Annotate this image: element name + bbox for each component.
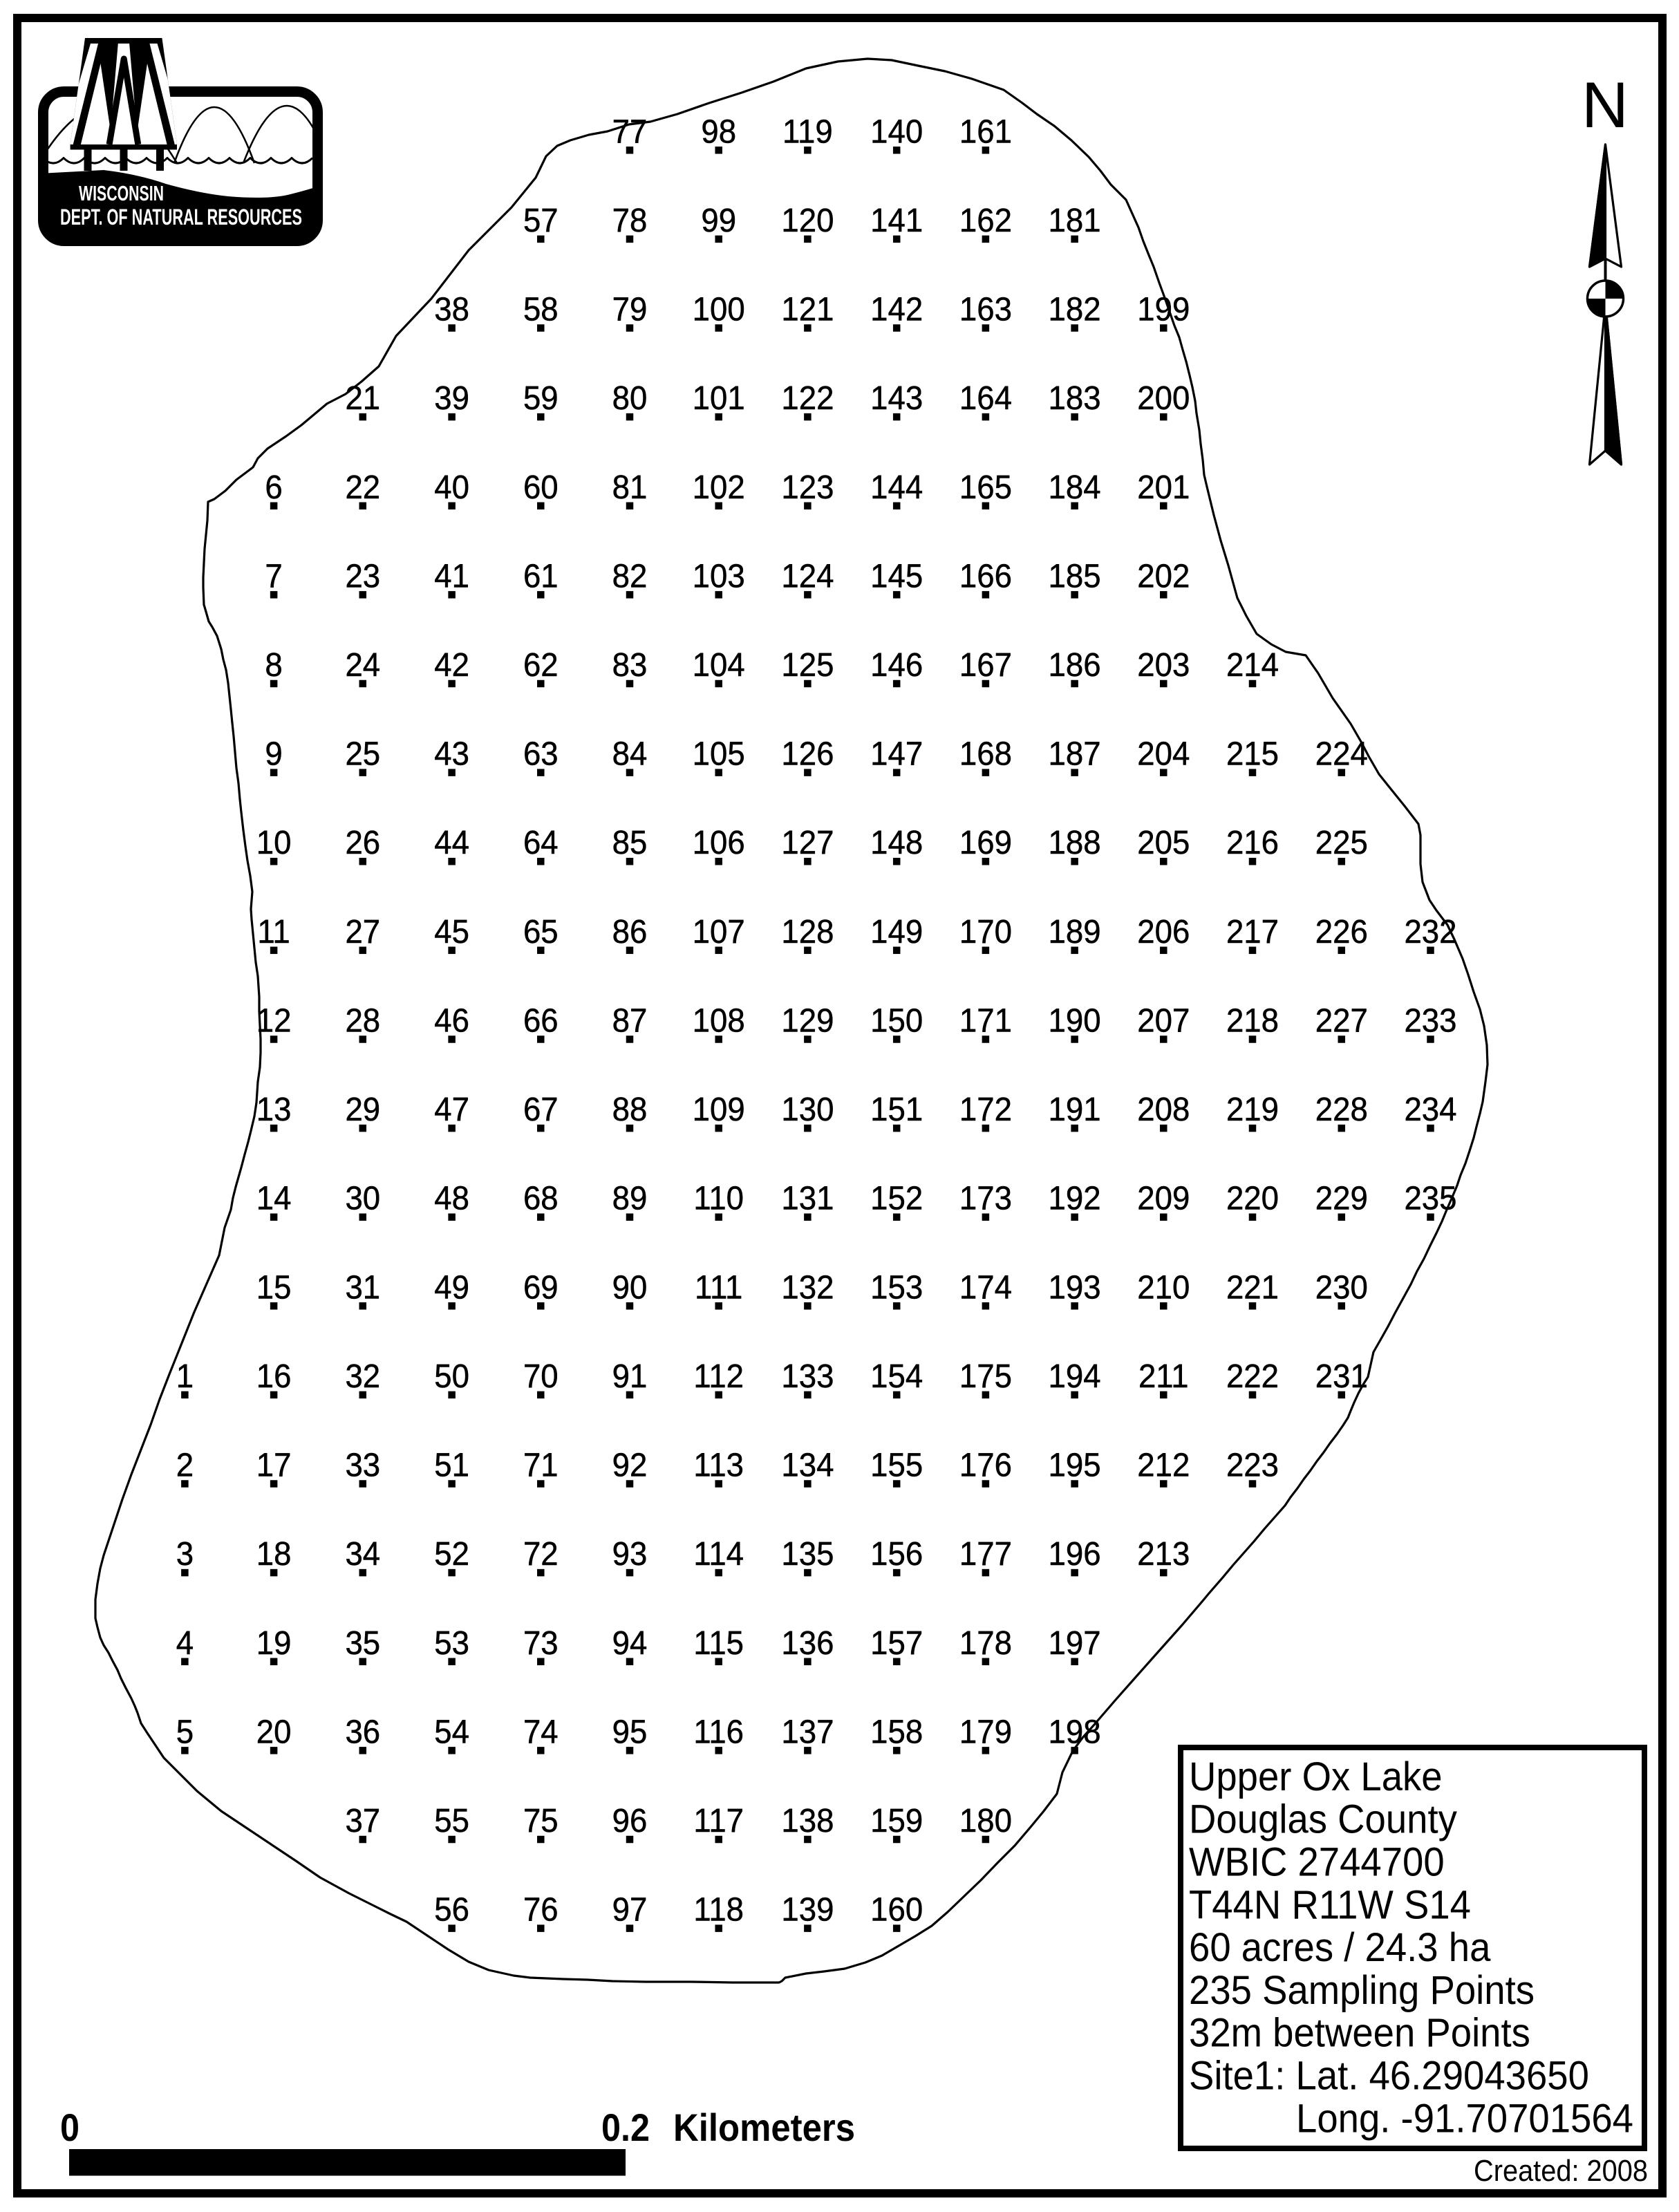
svg-text:154: 154: [870, 1358, 923, 1395]
svg-text:208: 208: [1137, 1091, 1190, 1128]
svg-text:139: 139: [781, 1892, 834, 1929]
svg-text:44: 44: [434, 825, 469, 861]
svg-text:120: 120: [781, 203, 834, 239]
svg-text:180: 180: [959, 1803, 1012, 1839]
svg-text:187: 187: [1049, 736, 1101, 773]
svg-text:32m between Points: 32m between Points: [1189, 2011, 1530, 2056]
svg-text:42: 42: [434, 647, 469, 684]
svg-text:147: 147: [870, 736, 923, 773]
svg-text:131: 131: [781, 1181, 834, 1217]
svg-text:181: 181: [1049, 203, 1101, 239]
svg-text:108: 108: [693, 1003, 745, 1040]
svg-text:222: 222: [1226, 1358, 1279, 1395]
svg-text:WISCONSIN: WISCONSIN: [79, 181, 164, 205]
svg-text:169: 169: [959, 825, 1012, 861]
svg-text:34: 34: [345, 1536, 380, 1573]
svg-text:184: 184: [1049, 469, 1101, 506]
svg-text:51: 51: [434, 1447, 469, 1484]
svg-text:134: 134: [781, 1447, 834, 1484]
svg-text:190: 190: [1049, 1003, 1101, 1040]
svg-text:100: 100: [693, 292, 745, 328]
svg-text:198: 198: [1049, 1714, 1101, 1750]
svg-text:53: 53: [434, 1625, 469, 1662]
svg-text:186: 186: [1049, 647, 1101, 684]
svg-text:107: 107: [693, 914, 745, 950]
svg-text:84: 84: [612, 736, 648, 773]
svg-text:143: 143: [870, 380, 923, 417]
svg-text:158: 158: [870, 1714, 923, 1750]
svg-text:32: 32: [345, 1358, 380, 1395]
svg-text:60: 60: [523, 469, 559, 506]
svg-text:66: 66: [523, 1003, 559, 1040]
svg-text:218: 218: [1226, 1003, 1279, 1040]
svg-text:119: 119: [782, 113, 833, 150]
svg-text:80: 80: [612, 380, 648, 417]
svg-text:15: 15: [256, 1269, 292, 1306]
svg-text:79: 79: [612, 292, 648, 328]
svg-text:27: 27: [345, 914, 380, 950]
svg-text:123: 123: [781, 469, 834, 506]
svg-text:99: 99: [701, 203, 736, 239]
svg-text:50: 50: [434, 1358, 469, 1395]
svg-text:159: 159: [870, 1803, 923, 1839]
svg-text:12: 12: [256, 1003, 292, 1040]
svg-text:167: 167: [959, 647, 1012, 684]
svg-text:130: 130: [781, 1091, 834, 1128]
svg-text:89: 89: [612, 1181, 648, 1217]
svg-text:30: 30: [345, 1181, 380, 1217]
svg-text:5: 5: [176, 1714, 194, 1750]
svg-text:105: 105: [693, 736, 745, 773]
svg-text:64: 64: [523, 825, 559, 861]
svg-text:97: 97: [612, 1892, 648, 1929]
svg-text:155: 155: [870, 1447, 923, 1484]
svg-text:75: 75: [523, 1803, 559, 1839]
svg-text:38: 38: [434, 292, 469, 328]
svg-text:121: 121: [781, 292, 834, 328]
svg-text:19: 19: [256, 1625, 292, 1662]
svg-text:199: 199: [1137, 292, 1190, 328]
svg-text:197: 197: [1049, 1625, 1101, 1662]
svg-text:N: N: [1582, 68, 1629, 141]
svg-text:191: 191: [1049, 1091, 1101, 1128]
svg-text:151: 151: [870, 1091, 923, 1128]
svg-text:202: 202: [1137, 558, 1190, 594]
svg-text:72: 72: [523, 1536, 559, 1573]
svg-text:135: 135: [781, 1536, 834, 1573]
svg-text:212: 212: [1137, 1447, 1190, 1484]
svg-text:171: 171: [959, 1003, 1012, 1040]
svg-text:230: 230: [1315, 1269, 1368, 1306]
svg-text:DEPT. OF NATURAL RESOURCES: DEPT. OF NATURAL RESOURCES: [60, 205, 302, 229]
svg-text:138: 138: [781, 1803, 834, 1839]
svg-text:45: 45: [434, 914, 469, 950]
svg-text:26: 26: [345, 825, 380, 861]
svg-text:3: 3: [176, 1536, 194, 1573]
svg-text:49: 49: [434, 1269, 469, 1306]
svg-text:215: 215: [1226, 736, 1279, 773]
svg-text:82: 82: [612, 558, 648, 594]
svg-text:142: 142: [870, 292, 923, 328]
svg-text:40: 40: [434, 469, 469, 506]
svg-text:223: 223: [1226, 1447, 1279, 1484]
svg-text:Long. -91.70701564: Long. -91.70701564: [1296, 2096, 1633, 2141]
svg-text:29: 29: [345, 1091, 380, 1128]
svg-text:24: 24: [345, 647, 380, 684]
svg-text:132: 132: [781, 1269, 834, 1306]
svg-text:22: 22: [345, 469, 380, 506]
svg-text:116: 116: [693, 1714, 744, 1750]
svg-text:20: 20: [256, 1714, 292, 1750]
svg-text:113: 113: [693, 1447, 744, 1484]
svg-text:206: 206: [1137, 914, 1190, 950]
svg-text:195: 195: [1049, 1447, 1101, 1484]
svg-text:67: 67: [523, 1091, 559, 1128]
svg-text:207: 207: [1137, 1003, 1190, 1040]
svg-text:101: 101: [693, 380, 745, 417]
svg-text:33: 33: [345, 1447, 380, 1484]
svg-text:77: 77: [612, 113, 648, 150]
svg-text:188: 188: [1049, 825, 1101, 861]
svg-text:201: 201: [1137, 469, 1190, 506]
svg-text:172: 172: [959, 1091, 1012, 1128]
svg-text:227: 227: [1315, 1003, 1368, 1040]
svg-text:160: 160: [870, 1892, 923, 1929]
svg-text:189: 189: [1049, 914, 1101, 950]
svg-text:118: 118: [693, 1892, 744, 1929]
svg-text:112: 112: [693, 1358, 744, 1395]
svg-text:235: 235: [1404, 1181, 1456, 1217]
svg-text:103: 103: [693, 558, 745, 594]
svg-text:170: 170: [959, 914, 1012, 950]
svg-text:124: 124: [781, 558, 834, 594]
svg-text:39: 39: [434, 380, 469, 417]
svg-text:102: 102: [693, 469, 745, 506]
svg-text:233: 233: [1404, 1003, 1456, 1040]
svg-text:91: 91: [612, 1358, 648, 1395]
svg-text:136: 136: [781, 1625, 834, 1662]
svg-text:56: 56: [434, 1892, 469, 1929]
svg-text:17: 17: [256, 1447, 292, 1484]
svg-text:234: 234: [1404, 1091, 1456, 1128]
svg-text:86: 86: [612, 914, 648, 950]
svg-text:59: 59: [523, 380, 559, 417]
svg-text:177: 177: [959, 1536, 1012, 1573]
svg-text:203: 203: [1137, 647, 1190, 684]
svg-text:41: 41: [434, 558, 469, 594]
svg-text:182: 182: [1049, 292, 1101, 328]
svg-text:217: 217: [1226, 914, 1279, 950]
svg-text:90: 90: [612, 1269, 648, 1306]
svg-text:74: 74: [523, 1714, 559, 1750]
svg-text:8: 8: [265, 647, 282, 684]
svg-text:98: 98: [701, 113, 736, 150]
svg-text:153: 153: [870, 1269, 923, 1306]
svg-text:165: 165: [959, 469, 1012, 506]
svg-text:163: 163: [959, 292, 1012, 328]
svg-text:176: 176: [959, 1447, 1012, 1484]
svg-text:47: 47: [434, 1091, 469, 1128]
svg-text:106: 106: [693, 825, 745, 861]
svg-text:37: 37: [345, 1803, 380, 1839]
svg-text:185: 185: [1049, 558, 1101, 594]
svg-text:161: 161: [959, 113, 1012, 150]
svg-text:210: 210: [1137, 1269, 1190, 1306]
svg-text:157: 157: [870, 1625, 923, 1662]
svg-text:83: 83: [612, 647, 648, 684]
svg-text:193: 193: [1049, 1269, 1101, 1306]
svg-text:125: 125: [781, 647, 834, 684]
svg-text:0: 0: [60, 2106, 79, 2149]
svg-text:214: 214: [1226, 647, 1279, 684]
svg-text:69: 69: [523, 1269, 559, 1306]
svg-text:122: 122: [781, 380, 834, 417]
svg-text:156: 156: [870, 1536, 923, 1573]
svg-text:Kilometers: Kilometers: [673, 2106, 855, 2149]
svg-text:228: 228: [1315, 1091, 1368, 1128]
svg-text:220: 220: [1226, 1181, 1279, 1217]
svg-text:23: 23: [345, 558, 380, 594]
svg-text:95: 95: [612, 1714, 648, 1750]
svg-text:166: 166: [959, 558, 1012, 594]
svg-text:104: 104: [693, 647, 745, 684]
svg-text:10: 10: [256, 825, 292, 861]
svg-text:94: 94: [612, 1625, 648, 1662]
svg-text:9: 9: [265, 736, 282, 773]
svg-text:126: 126: [781, 736, 834, 773]
svg-text:48: 48: [434, 1181, 469, 1217]
svg-text:145: 145: [870, 558, 923, 594]
svg-text:18: 18: [256, 1536, 292, 1573]
svg-text:192: 192: [1049, 1181, 1101, 1217]
svg-text:137: 137: [781, 1714, 834, 1750]
svg-text:235 Sampling Points: 235 Sampling Points: [1189, 1968, 1535, 2013]
svg-text:114: 114: [693, 1536, 744, 1573]
svg-text:117: 117: [693, 1803, 744, 1839]
svg-text:58: 58: [523, 292, 559, 328]
svg-text:127: 127: [781, 825, 834, 861]
svg-text:168: 168: [959, 736, 1012, 773]
svg-text:57: 57: [523, 203, 559, 239]
svg-text:35: 35: [345, 1625, 380, 1662]
svg-text:216: 216: [1226, 825, 1279, 861]
svg-text:204: 204: [1137, 736, 1190, 773]
svg-text:231: 231: [1315, 1358, 1368, 1395]
svg-text:73: 73: [523, 1625, 559, 1662]
svg-text:81: 81: [612, 469, 648, 506]
svg-text:4: 4: [176, 1625, 194, 1662]
svg-text:85: 85: [612, 825, 648, 861]
svg-text:62: 62: [523, 647, 559, 684]
svg-text:146: 146: [870, 647, 923, 684]
svg-text:174: 174: [959, 1269, 1012, 1306]
svg-text:Created: 2008: Created: 2008: [1474, 2154, 1648, 2188]
svg-text:78: 78: [612, 203, 648, 239]
svg-text:194: 194: [1049, 1358, 1101, 1395]
svg-text:54: 54: [434, 1714, 469, 1750]
svg-text:128: 128: [781, 914, 834, 950]
svg-text:229: 229: [1315, 1181, 1368, 1217]
svg-text:144: 144: [870, 469, 923, 506]
svg-text:6: 6: [265, 469, 282, 506]
svg-text:68: 68: [523, 1181, 559, 1217]
svg-text:28: 28: [345, 1003, 380, 1040]
svg-text:1: 1: [176, 1358, 194, 1395]
svg-text:209: 209: [1137, 1181, 1190, 1217]
svg-text:25: 25: [345, 736, 380, 773]
svg-text:110: 110: [693, 1181, 744, 1217]
svg-text:179: 179: [959, 1714, 1012, 1750]
svg-text:205: 205: [1137, 825, 1190, 861]
svg-text:141: 141: [870, 203, 923, 239]
svg-text:149: 149: [870, 914, 923, 950]
svg-text:183: 183: [1049, 380, 1101, 417]
svg-text:148: 148: [870, 825, 923, 861]
svg-text:115: 115: [693, 1625, 744, 1662]
svg-text:150: 150: [870, 1003, 923, 1040]
svg-text:13: 13: [256, 1091, 292, 1128]
svg-text:96: 96: [612, 1803, 648, 1839]
svg-text:16: 16: [256, 1358, 292, 1395]
svg-text:Site1: Lat. 46.29043650: Site1: Lat. 46.29043650: [1189, 2054, 1589, 2099]
svg-text:55: 55: [434, 1803, 469, 1839]
svg-text:164: 164: [959, 380, 1012, 417]
svg-text:129: 129: [781, 1003, 834, 1040]
svg-text:2: 2: [176, 1447, 194, 1484]
svg-text:63: 63: [523, 736, 559, 773]
svg-text:14: 14: [256, 1181, 292, 1217]
svg-text:46: 46: [434, 1003, 469, 1040]
svg-text:11: 11: [257, 914, 290, 950]
svg-text:221: 221: [1226, 1269, 1279, 1306]
svg-text:87: 87: [612, 1003, 648, 1040]
svg-text:232: 232: [1404, 914, 1456, 950]
svg-text:0.2: 0.2: [601, 2106, 650, 2149]
svg-text:36: 36: [345, 1714, 380, 1750]
svg-text:178: 178: [959, 1625, 1012, 1662]
svg-text:7: 7: [265, 558, 282, 594]
svg-text:133: 133: [781, 1358, 834, 1395]
svg-text:200: 200: [1137, 380, 1190, 417]
svg-text:92: 92: [612, 1447, 648, 1484]
svg-text:71: 71: [523, 1447, 559, 1484]
svg-text:31: 31: [345, 1269, 380, 1306]
svg-text:219: 219: [1226, 1091, 1279, 1128]
svg-text:52: 52: [434, 1536, 469, 1573]
svg-text:76: 76: [523, 1892, 559, 1929]
svg-text:21: 21: [345, 380, 380, 417]
svg-text:162: 162: [959, 203, 1012, 239]
svg-text:140: 140: [870, 113, 923, 150]
svg-text:225: 225: [1315, 825, 1368, 861]
svg-text:70: 70: [523, 1358, 559, 1395]
svg-text:Douglas County: Douglas County: [1189, 1797, 1457, 1842]
svg-text:226: 226: [1315, 914, 1368, 950]
svg-text:61: 61: [523, 558, 559, 594]
svg-text:65: 65: [523, 914, 559, 950]
svg-text:213: 213: [1137, 1536, 1190, 1573]
svg-text:88: 88: [612, 1091, 648, 1128]
svg-text:175: 175: [959, 1358, 1012, 1395]
svg-text:173: 173: [959, 1181, 1012, 1217]
svg-text:152: 152: [870, 1181, 923, 1217]
svg-text:WBIC 2744700: WBIC 2744700: [1189, 1840, 1445, 1885]
svg-text:196: 196: [1049, 1536, 1101, 1573]
svg-text:Upper Ox Lake: Upper Ox Lake: [1189, 1754, 1443, 1799]
svg-text:224: 224: [1315, 736, 1368, 773]
svg-text:60 acres / 24.3 ha: 60 acres / 24.3 ha: [1189, 1925, 1491, 1970]
svg-text:43: 43: [434, 736, 469, 773]
svg-text:T44N R11W S14: T44N R11W S14: [1189, 1882, 1471, 1927]
svg-text:111: 111: [695, 1269, 742, 1306]
svg-text:211: 211: [1138, 1358, 1189, 1395]
svg-text:109: 109: [693, 1091, 745, 1128]
svg-text:93: 93: [612, 1536, 648, 1573]
